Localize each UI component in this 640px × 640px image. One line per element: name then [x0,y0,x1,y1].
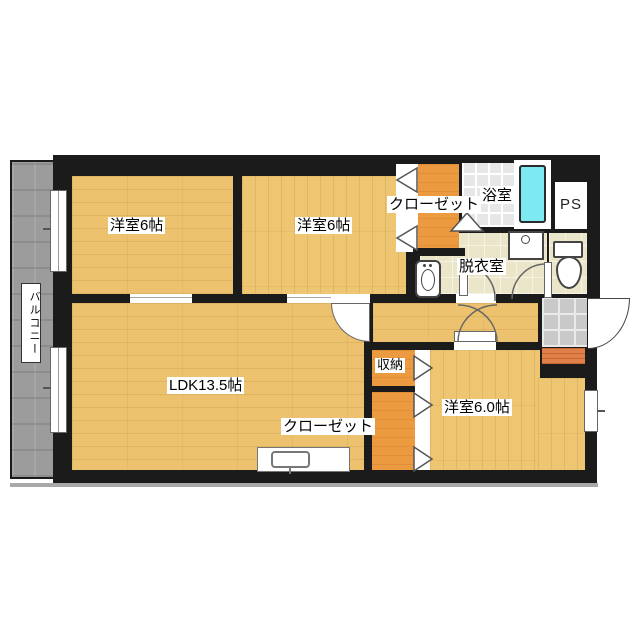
bedroom1-label: 洋室6帖 [108,217,165,234]
building-shadow [10,483,598,487]
balcony-label: バルコニー [21,283,41,363]
closet-bottom-label: クローゼット [281,418,375,435]
storage-door-triangle [413,355,433,381]
ldk-door-opening [331,294,370,303]
entrance-step [542,348,585,364]
washroom-label: 脱衣室 [457,258,506,275]
closet-top-door-triangle-1 [396,167,418,193]
ldk-label: LDK13.5帖 [167,377,244,394]
bedroom3-label: 洋室6.0帖 [442,399,512,416]
bathroom-label: 浴室 [480,187,514,204]
bedroom1-floor [72,176,233,294]
window-tick-1 [43,228,51,230]
wall-storage-top-a [364,342,456,350]
bedroom2-floor [242,176,406,294]
kitchen-sink-icon [271,451,310,468]
bedroom2-label: 洋室6帖 [295,217,352,234]
bedroom3-floor-right [538,378,585,470]
closet-top-label: クローゼット [387,196,481,213]
floor-plan: 洋室6帖 洋室6帖 クローゼット 浴室 PS 脱衣室 LDK13.5帖 収納 ク… [0,0,640,640]
closet-top-door-triangle-2 [396,225,418,251]
bedroom2-sliding-door [287,294,331,303]
window-left-top-sash [58,191,59,271]
bedroom3-door-opening [454,342,496,350]
closet-bottom-area [372,392,415,470]
bathroom-door-triangle [450,212,484,232]
washing-machine-drain [521,235,530,244]
entrance-tile [542,298,587,347]
washbasin-tap2 [429,264,432,267]
wall-below-closet-top [413,248,465,256]
washbasin-tap [423,264,426,267]
washbasin-bowl [421,269,435,291]
window-tick-2 [43,387,51,389]
closet-bottom-door-triangle-2 [413,446,433,472]
pipe-space-label: PS [558,196,584,213]
window-tick-3 [597,410,605,412]
toilet-door-swing [510,262,546,299]
wall-storage-top-b [495,342,545,350]
bedroom1-sliding-door [130,294,192,303]
bathtub-icon [519,165,546,223]
wall-bedroom-divider [233,155,242,303]
hallway-door-swings [456,303,497,342]
window-right [584,390,598,432]
storage-label: 収納 [375,358,405,373]
entrance-door-swing [588,298,630,349]
closet-bottom-door-triangle-1 [413,392,433,418]
kitchen-sink-tick [289,468,291,474]
window-left-bottom-sash [58,348,59,432]
